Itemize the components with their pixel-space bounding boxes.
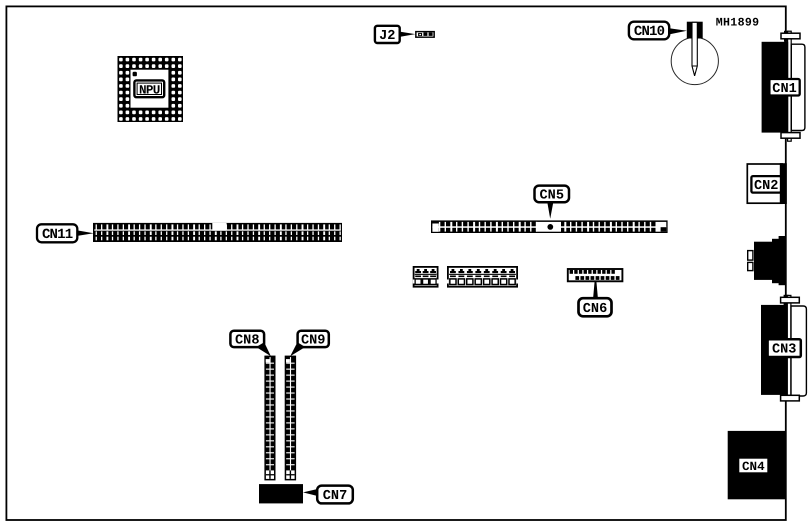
svg-text:CN11: CN11	[42, 227, 73, 243]
svg-text:CN8: CN8	[235, 334, 259, 349]
svg-text:CN1: CN1	[772, 82, 796, 97]
svg-text:CN7: CN7	[323, 489, 347, 504]
svg-text:CN9: CN9	[301, 334, 325, 349]
svg-text:NPU: NPU	[139, 83, 160, 97]
svg-text:CN3: CN3	[772, 343, 796, 358]
svg-text:CN10: CN10	[634, 24, 665, 40]
svg-text:CN2: CN2	[754, 179, 778, 194]
svg-text:CN6: CN6	[583, 302, 607, 317]
svg-text:CN4: CN4	[742, 460, 765, 474]
svg-text:J2: J2	[379, 29, 395, 44]
svg-text:CN5: CN5	[540, 189, 564, 204]
svg-text:MH1899: MH1899	[716, 16, 760, 29]
